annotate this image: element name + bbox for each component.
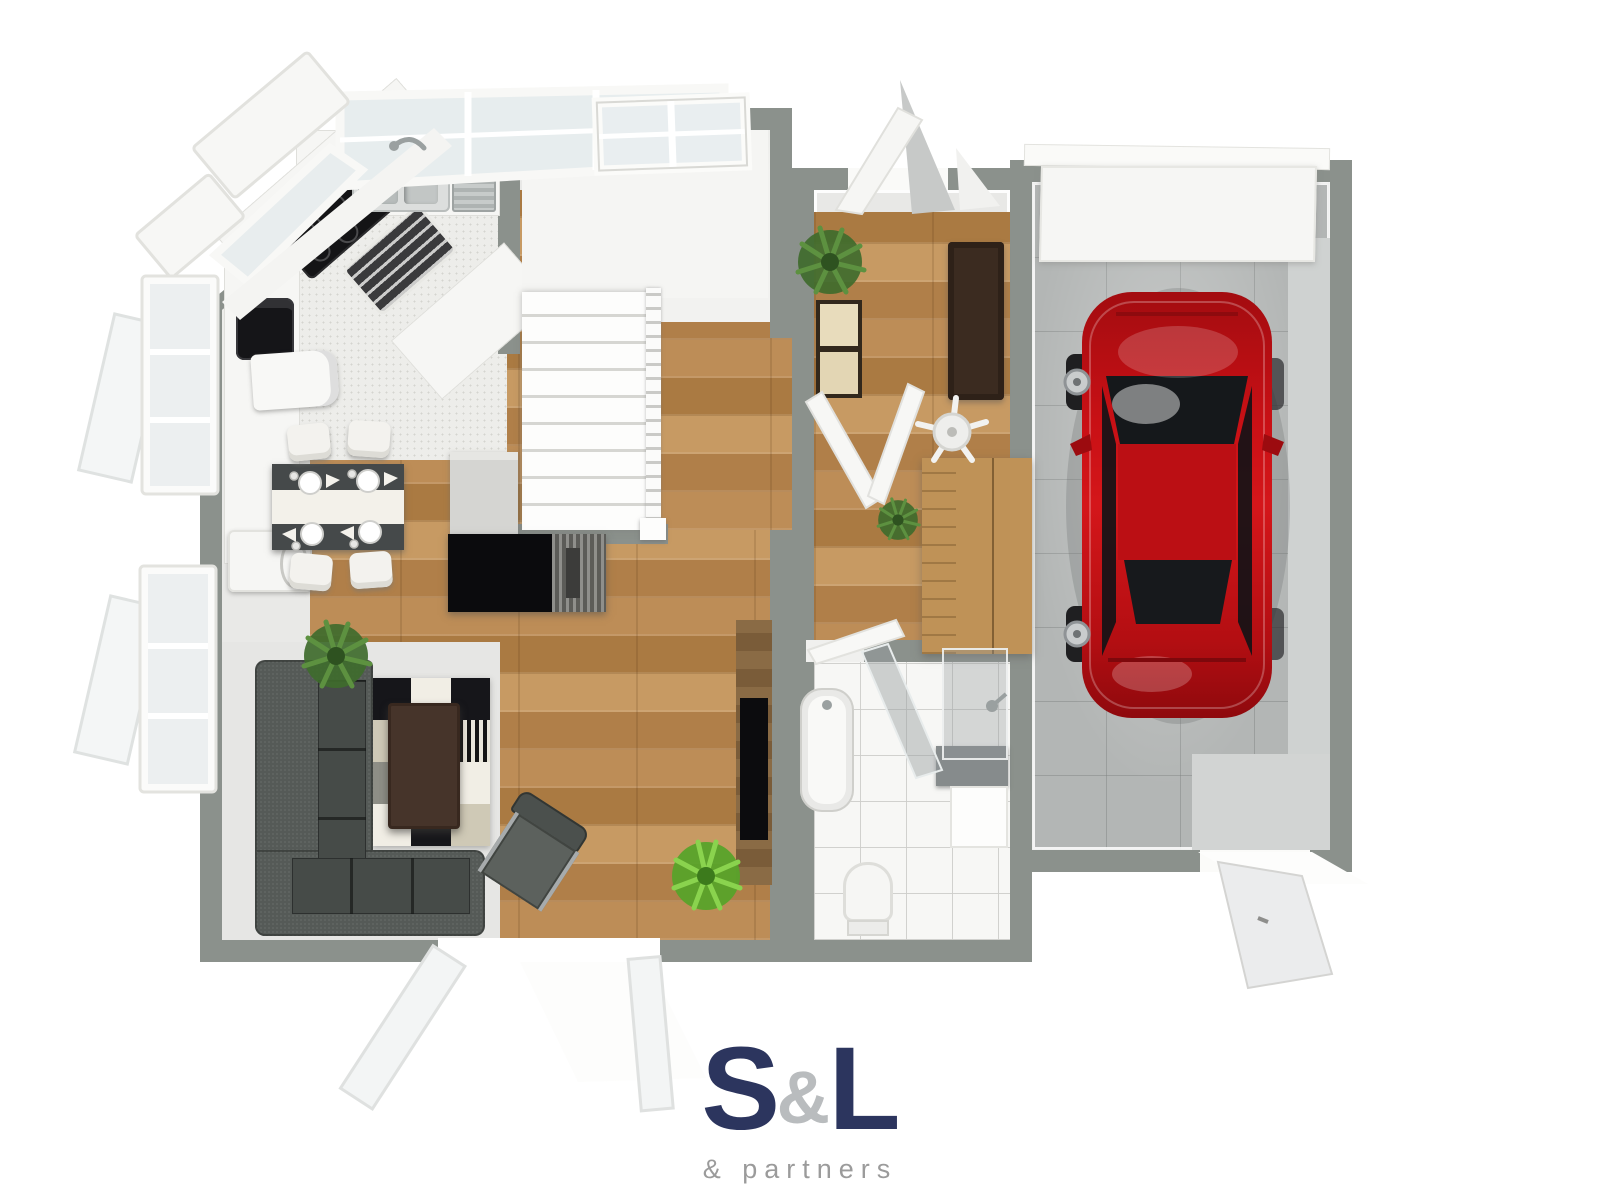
stair-window (597, 97, 747, 170)
office-double-door (806, 384, 924, 508)
left-window-lower (75, 566, 216, 792)
front-door (836, 80, 1000, 214)
left-window-upper (79, 276, 218, 494)
dining-place-settings (282, 470, 398, 550)
plant-patio (672, 842, 740, 910)
shower-fitting (986, 694, 1006, 712)
floor-plan-canvas: S & L & partners (0, 0, 1600, 1200)
plant-living (304, 622, 370, 688)
logo-letter-s: S (701, 1030, 778, 1148)
logo-ampersand: & (777, 1061, 830, 1135)
logo-mark: S & L (0, 1030, 1600, 1148)
office-chair (918, 398, 986, 460)
garage-rear-door (1198, 852, 1368, 988)
plant-hall (798, 228, 864, 294)
kitchen-bay-window (135, 52, 724, 320)
logo-letter-l: L (828, 1030, 898, 1148)
bathroom-door (808, 620, 942, 778)
red-car (1065, 288, 1290, 724)
detail-overlay (0, 0, 1600, 1200)
logo: S & L & partners (0, 1030, 1600, 1185)
logo-tagline: & partners (0, 1154, 1600, 1185)
